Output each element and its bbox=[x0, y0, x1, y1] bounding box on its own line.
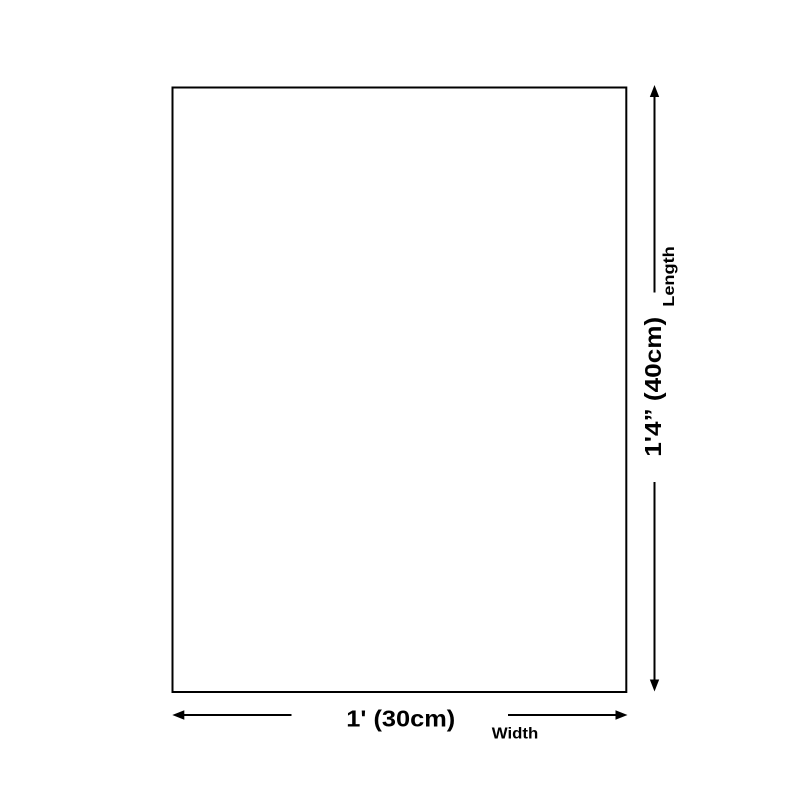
svg-text:Width: Width bbox=[492, 726, 539, 743]
svg-text:1'4” (40cm): 1'4” (40cm) bbox=[640, 317, 666, 457]
svg-text:1' (30cm): 1' (30cm) bbox=[346, 706, 455, 732]
svg-text:Length: Length bbox=[661, 246, 678, 307]
